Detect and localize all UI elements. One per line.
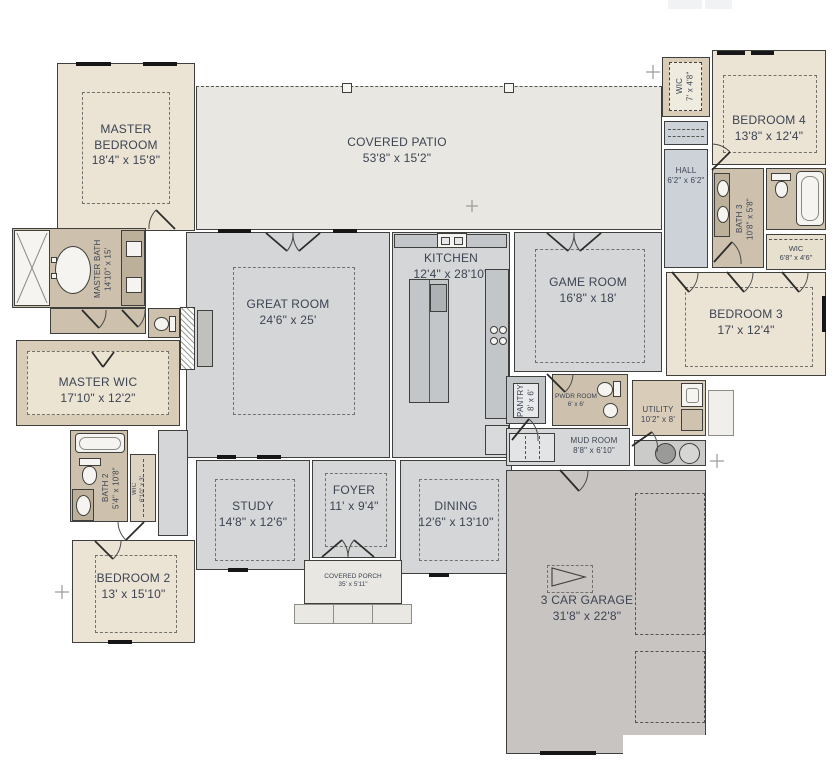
bath3-vanity: [714, 173, 730, 237]
room-name: UTILITY: [633, 405, 683, 415]
room-master-bath: MASTER BATH 14'10" x 15': [12, 228, 146, 308]
fireplace-icon: [180, 307, 195, 370]
toilet-icon: [154, 317, 169, 331]
floor-plan: COVERED PATIO 53'8" x 15'2" MASTER BEDRO…: [0, 0, 838, 783]
patio-post: [504, 83, 514, 93]
room-label-study: STUDY 14'8" x 12'6": [197, 499, 309, 530]
side-stoop: [708, 390, 734, 436]
cooktop-burner: [490, 326, 498, 334]
sink-bowl: [441, 237, 450, 245]
room-label-hall: HALL 6'2" x 6'2": [665, 166, 707, 186]
tub-faucet: [51, 273, 57, 279]
room-label-dining: DINING 12'6" x 13'10": [401, 499, 511, 530]
attic-access: [547, 565, 593, 593]
room-kitchen: KITCHEN 12'4" x 28'10": [392, 232, 510, 458]
room-dims: 7' x 4'8": [685, 62, 695, 110]
room-dims: 13'8" x 12'4": [713, 129, 825, 145]
shower: [14, 230, 50, 306]
room-garage: 3 CAR GARAGE 31'8" x 22'8": [506, 470, 706, 754]
sink-icon: [126, 277, 142, 293]
room-label-foyer: FOYER 11' x 9'4": [313, 483, 395, 514]
room-dims: 13' x 15'10": [73, 587, 194, 603]
master-toilet-closet: [148, 308, 180, 338]
room-name: FOYER: [313, 483, 395, 499]
ui-artifact: [705, 0, 732, 9]
room-bath2: BATH 2 5'4" x 10'8": [70, 430, 128, 522]
room-name: STUDY: [197, 499, 309, 515]
room-label-bedroom3: BEDROOM 3 17' x 12'4": [667, 307, 825, 338]
room-dims: 6'8" x 4'6": [767, 253, 825, 262]
room-name: PANTRY: [516, 383, 526, 418]
toilet-tank: [169, 316, 176, 332]
shelf-dash: [769, 239, 823, 240]
tub-basin: [801, 176, 819, 221]
room-covered-patio: COVERED PATIO 53'8" x 15'2": [196, 86, 662, 230]
room-name: MUD ROOM: [559, 436, 629, 446]
room-pantry: PANTRY 8' x 6': [506, 376, 546, 424]
room-name: BATH 2: [101, 457, 111, 519]
room-name: MASTER WIC: [17, 375, 179, 391]
hallway-bedroom2: [158, 430, 188, 536]
room-study: STUDY 14'8" x 12'6": [196, 460, 310, 570]
room-name: MASTER BATH: [93, 233, 103, 305]
room-name: BATH 3: [735, 175, 745, 263]
bath3-fixture-area: [766, 168, 826, 230]
cooktop-burner: [490, 337, 498, 345]
room-name: BEDROOM 2: [73, 571, 194, 587]
mudroom-lockers: [509, 433, 555, 462]
room-dims: 18'4" x 15'8": [58, 153, 194, 169]
sink-icon: [126, 241, 142, 257]
room-bedroom2: BEDROOM 2 13' x 15'10": [72, 540, 195, 643]
linen-closet: [664, 121, 708, 145]
room-label-game-room: GAME ROOM 16'8" x 18': [515, 275, 661, 306]
ceiling-dash: [233, 267, 355, 415]
room-dims: 10'2" x 8': [633, 415, 683, 425]
room-name: PWDR ROOM: [555, 393, 597, 401]
room-master-bedroom: MASTER BEDROOM 18'4" x 15'8": [57, 63, 195, 231]
room-label-wic-bedroom4: WIC 7' x 4'8": [675, 62, 697, 110]
room-dims: 14'8" x 12'6": [197, 515, 309, 531]
room-dims: 8' x 6': [526, 383, 536, 418]
room-name: KITCHEN: [393, 251, 509, 267]
room-name: COVERED PATIO: [287, 135, 507, 151]
step-joint: [372, 605, 373, 623]
kitchen-sink: [437, 233, 467, 248]
master-bath-hall: [50, 308, 146, 334]
room-name: WIC: [767, 244, 825, 253]
tub-basin: [79, 437, 121, 450]
room-label-bedroom4: BEDROOM 4 13'8" x 12'4": [713, 113, 825, 144]
sink-bowl: [454, 237, 463, 245]
room-label-pantry: PANTRY 8' x 6': [516, 383, 538, 418]
room-dims: 6'10" x 3': [140, 459, 148, 519]
toilet-tank: [613, 381, 621, 397]
bathtub-icon: [75, 433, 125, 453]
room-name: GAME ROOM: [515, 275, 661, 291]
room-name: BEDROOM 3: [667, 307, 825, 323]
room-label-wic-bedroom2: WIC 6'10" x 3': [132, 459, 154, 519]
patio-post: [342, 83, 352, 93]
ui-artifact: [668, 0, 702, 9]
locker-divider: [525, 436, 526, 459]
room-label-master-wic: MASTER WIC 17'10" x 12'2": [17, 375, 179, 406]
bathtub-icon: [796, 171, 824, 226]
room-name: COVERED PORCH: [305, 573, 401, 581]
room-name: BEDROOM 4: [713, 113, 825, 129]
room-dims: 35' x 5'11": [305, 581, 401, 589]
room-dims: 17' x 12'4": [667, 323, 825, 339]
sink-icon: [603, 403, 618, 418]
room-foyer: FOYER 11' x 9'4": [312, 460, 396, 558]
toilet-tank: [771, 173, 791, 181]
sink-icon: [717, 180, 729, 197]
garage-bay-dash: [635, 493, 705, 635]
room-name: WIC: [675, 62, 685, 110]
porch-steps: [294, 604, 412, 624]
toilet-tank: [79, 458, 101, 466]
room-name: DINING: [401, 499, 511, 515]
sink-icon: [76, 495, 91, 516]
washer-door: [686, 388, 699, 403]
fireplace-box: [197, 310, 213, 367]
shelf-dash: [668, 129, 704, 130]
sink-icon: [717, 206, 729, 223]
room-master-wic: MASTER WIC 17'10" x 12'2": [16, 340, 180, 426]
room-name: MASTER BEDROOM: [76, 122, 176, 153]
room-dims: 12'6" x 13'10": [401, 515, 511, 531]
room-dims: 8'8" x 6'10": [559, 446, 629, 456]
room-mud-room: MUD ROOM 8'8" x 6'10": [506, 428, 630, 466]
room-powder: PWDR ROOM 6' x 6': [552, 374, 628, 426]
dryer-icon: [681, 409, 703, 431]
room-dims: 16'8" x 18': [515, 291, 661, 307]
locker-divider: [539, 436, 540, 459]
room-name: GREAT ROOM: [187, 297, 389, 313]
room-wic-bedroom3: WIC 6'8" x 4'6": [766, 234, 826, 270]
room-game-room: GAME ROOM 16'8" x 18': [514, 232, 662, 372]
room-dims: 14'10" x 15': [103, 233, 113, 305]
cooktop-burner: [499, 337, 507, 345]
water-heater-icon: [655, 443, 676, 464]
toilet-icon: [597, 382, 613, 397]
room-bedroom3: BEDROOM 3 17' x 12'4": [666, 272, 826, 376]
room-dims: 10'8" x 5'8": [745, 175, 755, 263]
room-utility: UTILITY 10'2" x 8': [632, 380, 706, 436]
room-label-bath2: BATH 2 5'4" x 10'8": [101, 457, 127, 519]
kitchen-island: [409, 279, 449, 403]
garage-bay-dash: [635, 651, 705, 723]
room-name: HALL: [665, 166, 707, 176]
room-dims: 53'8" x 15'2": [287, 151, 507, 167]
room-label-covered-patio: COVERED PATIO 53'8" x 15'2": [287, 135, 507, 166]
room-bedroom4: BEDROOM 4 13'8" x 12'4": [712, 50, 826, 165]
room-label-master-bath: MASTER BATH 14'10" x 15': [93, 233, 121, 305]
room-wic-bedroom2: WIC 6'10" x 3': [130, 454, 156, 522]
room-hall: HALL 6'2" x 6'2": [664, 149, 708, 268]
toilet-icon: [775, 181, 788, 198]
room-label-master-bedroom: MASTER BEDROOM 18'4" x 15'8": [58, 122, 194, 169]
room-wic-bedroom4: WIC 7' x 4'8": [662, 57, 710, 117]
room-label-mud-room: MUD ROOM 8'8" x 6'10": [559, 436, 629, 456]
toilet-icon: [82, 466, 97, 485]
room-label-utility: UTILITY 10'2" x 8': [633, 405, 683, 425]
water-heater-icon: [679, 443, 700, 464]
room-label-covered-porch: COVERED PORCH 35' x 5'11": [305, 573, 401, 589]
room-bath3: BATH 3 10'8" x 5'8": [712, 168, 764, 268]
washer-icon: [681, 383, 703, 407]
island-sink: [430, 284, 447, 312]
bathtub-icon: [55, 246, 91, 294]
room-covered-porch: COVERED PORCH 35' x 5'11": [304, 560, 402, 604]
tub-faucet: [51, 257, 57, 263]
room-dims: 24'6" x 25': [187, 313, 389, 329]
room-dims: 6' x 6': [555, 401, 597, 409]
room-name: WIC: [132, 459, 140, 519]
room-label-great-room: GREAT ROOM 24'6" x 25': [187, 297, 389, 328]
garage-entry-strip: [634, 440, 706, 466]
bath2-vanity: [72, 489, 94, 521]
room-great-room: GREAT ROOM 24'6" x 25': [186, 232, 390, 458]
room-dims: 17'10" x 12'2": [17, 391, 179, 407]
shelf-dash: [668, 136, 704, 137]
master-vanity: [121, 230, 145, 306]
room-label-powder: PWDR ROOM 6' x 6': [555, 393, 597, 409]
room-label-bath3: BATH 3 10'8" x 5'8": [735, 175, 761, 263]
room-dims: 6'2" x 6'2": [665, 176, 707, 186]
room-dining: DINING 12'6" x 13'10": [400, 460, 512, 574]
room-label-bedroom2: BEDROOM 2 13' x 15'10": [73, 571, 194, 602]
room-label-wic-bedroom3: WIC 6'8" x 4'6": [767, 244, 825, 262]
room-dims: 5'4" x 10'8": [111, 457, 121, 519]
step-joint: [333, 605, 334, 623]
room-dims: 11' x 9'4": [313, 499, 395, 515]
cooktop-burner: [499, 326, 507, 334]
